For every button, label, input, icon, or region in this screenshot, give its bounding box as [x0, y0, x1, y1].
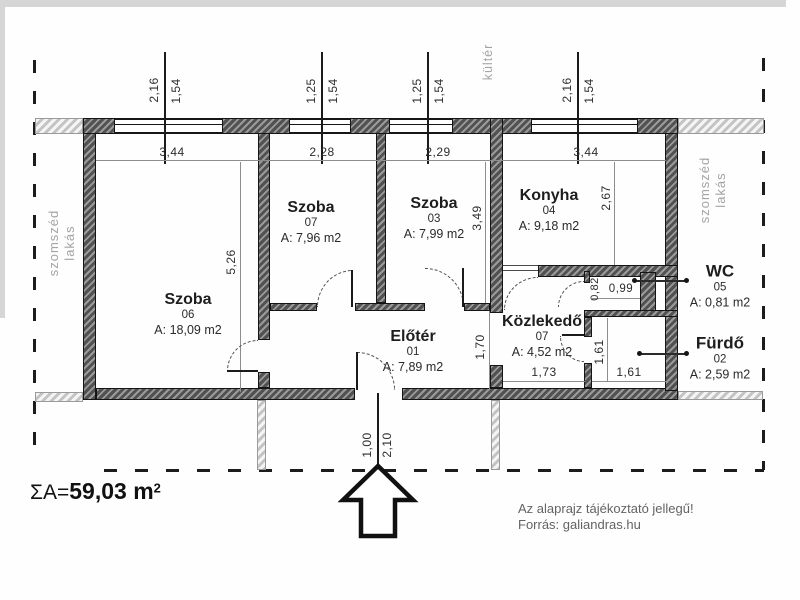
wall-segment	[258, 133, 270, 340]
wall-segment	[584, 363, 592, 388]
neighbor-text: szomszéd	[46, 210, 62, 277]
window	[532, 118, 637, 134]
room-name: WC	[690, 261, 750, 281]
dimension-line	[503, 381, 585, 382]
wall-segment	[83, 133, 96, 400]
neighbor-label-right: szomszéd lakás	[697, 157, 730, 224]
wall-segment	[538, 265, 678, 277]
room-number: 02	[690, 354, 750, 368]
width-dim: 2,29	[425, 145, 450, 159]
door-leaf-entrance	[356, 352, 358, 390]
room-name: Fürdő	[690, 333, 750, 353]
room-area: A: 7,96 m2	[281, 231, 341, 246]
window	[115, 118, 222, 134]
width-dim: 3,44	[573, 145, 598, 159]
furdo-leader-line	[641, 353, 686, 355]
wc-leader-line	[636, 280, 686, 282]
wc-leader-dot	[684, 278, 689, 283]
door-leaf-szoba06	[227, 370, 258, 372]
room-width-dim: 0,99	[609, 283, 633, 295]
room-number: 01	[383, 346, 443, 360]
total-area-prefix: ΣA=	[30, 481, 69, 504]
dimension-line	[592, 381, 666, 382]
room-label-furdo: Fürdő 02 A: 2,59 m2	[690, 333, 750, 382]
outside-text: kültér	[481, 44, 495, 81]
door-arc-szoba06	[227, 340, 258, 371]
wall-segment	[464, 303, 490, 311]
room-height-dim: 3,49	[470, 205, 484, 230]
neighbor-text: lakás	[713, 157, 729, 224]
wall-segment	[96, 388, 355, 400]
wall-segment	[270, 303, 317, 311]
room-width-dim: 1,61	[616, 365, 641, 379]
neighbor-wall	[491, 400, 500, 470]
window	[390, 118, 452, 134]
door-arc-szoba03	[425, 268, 464, 307]
window	[290, 118, 350, 134]
room-name: Előtér	[383, 327, 443, 346]
room-label-konyha: Konyha 04 A: 9,18 m2	[519, 186, 579, 234]
dimension-line	[485, 162, 486, 303]
window-height-dim: 1,54	[432, 78, 446, 103]
window-height-dim: 1,54	[582, 78, 596, 103]
entrance-axis	[377, 393, 379, 466]
room-name: Közlekedő	[502, 312, 582, 331]
door-leaf-furdo	[562, 334, 584, 336]
scan-artifact-left	[0, 0, 5, 318]
source-note: Forrás: galiandras.hu	[518, 517, 641, 534]
neighbor-text: lakás	[62, 210, 78, 277]
furdo-leader-dot	[684, 351, 689, 356]
total-area: ΣA=59,03 m2	[30, 478, 161, 505]
room-number: 03	[404, 213, 464, 227]
wall-segment	[490, 365, 503, 388]
room-label-szoba-03: Szoba 03 A: 7,99 m2	[404, 194, 464, 242]
door-leaf-szoba03	[462, 268, 464, 307]
wall-segment	[640, 272, 656, 312]
room-area: A: 9,18 m2	[519, 219, 579, 234]
source-text: Forrás: galiandras.hu	[518, 517, 641, 532]
boundary-line-bottom	[104, 469, 764, 472]
room-label-eloter: Előtér 01 A: 7,89 m2	[383, 327, 443, 375]
wall-segment	[376, 133, 386, 303]
window-height-dim: 1,54	[169, 78, 183, 103]
neighbor-wall	[35, 392, 83, 402]
room-number: 05	[690, 282, 750, 296]
room-area: A: 7,99 m2	[404, 227, 464, 242]
neighbor-label-left: szomszéd lakás	[46, 210, 79, 277]
neighbor-wall	[35, 118, 83, 134]
door-arc-konyha	[504, 277, 538, 310]
window-height-dim: 1,54	[326, 78, 340, 103]
wall-segment	[490, 118, 503, 313]
door-arc-szoba07	[317, 270, 353, 307]
room-height-dim: 0,82	[589, 277, 601, 300]
disclaimer-text: Az alaprajz tájékoztató jellegű!	[518, 501, 694, 516]
scan-artifact-top	[0, 0, 786, 7]
door-leaf-szoba07	[351, 270, 353, 307]
room-number: 04	[519, 205, 579, 219]
window-width-dim: 1,25	[304, 78, 318, 103]
room-height-dim: 2,67	[599, 185, 613, 210]
wall-segment	[584, 310, 678, 317]
dimension-line	[607, 318, 608, 382]
wall-segment	[584, 317, 592, 337]
wall-segment	[402, 388, 678, 400]
wall-segment	[222, 118, 290, 134]
dimension-line	[489, 311, 490, 389]
neighbor-wall	[257, 400, 266, 470]
wc-leader-dot	[632, 278, 637, 283]
room-number: 07	[281, 217, 341, 231]
dimension-line	[96, 160, 666, 161]
neighbor-wall	[678, 391, 763, 400]
total-area-sup: 2	[154, 481, 161, 496]
disclaimer-note: Az alaprajz tájékoztató jellegű!	[518, 501, 694, 518]
furdo-leader-dot	[637, 351, 642, 356]
room-name: Szoba	[281, 198, 341, 217]
dimension-line	[614, 162, 615, 265]
wall-segment	[83, 118, 115, 134]
neighbor-text: szomszéd	[697, 157, 713, 224]
room-area: A: 7,89 m2	[383, 360, 443, 375]
room-name: Szoba	[154, 290, 221, 309]
door-opening	[503, 265, 538, 271]
wall-segment	[258, 372, 270, 388]
outside-label: kültér	[481, 44, 497, 81]
entrance-width-dim: 1,00	[360, 432, 374, 457]
neighbor-wall	[678, 118, 764, 134]
room-height-dim: 1,61	[592, 339, 606, 364]
width-dim: 2,28	[309, 145, 334, 159]
width-dim: 3,44	[159, 145, 184, 159]
room-height-dim: 1,70	[473, 334, 487, 359]
window-width-dim: 2,16	[560, 77, 574, 102]
window-width-dim: 1,25	[410, 78, 424, 103]
entrance-arrow	[338, 460, 420, 542]
room-number: 06	[154, 309, 221, 323]
room-area: A: 0,81 m2	[690, 296, 750, 311]
room-height-dim: 5,26	[224, 249, 238, 274]
room-area: A: 2,59 m2	[690, 368, 750, 383]
room-label-wc: WC 05 A: 0,81 m2	[690, 261, 750, 310]
room-label-szoba-06: Szoba 06 A: 18,09 m2	[154, 290, 221, 338]
window-width-dim: 2,16	[147, 77, 161, 102]
room-name: Konyha	[519, 186, 579, 205]
wall-segment	[350, 118, 390, 134]
room-area: A: 18,09 m2	[154, 323, 221, 338]
floor-plan: 2,16 1,54 1,25 1,54 1,25 1,54 2,16 1,54 …	[0, 0, 800, 600]
room-label-szoba-07: Szoba 07 A: 7,96 m2	[281, 198, 341, 246]
door-arc-wc	[558, 281, 584, 307]
room-name: Szoba	[404, 194, 464, 213]
wall-segment	[637, 118, 678, 134]
room-width-dim: 1,73	[531, 365, 556, 379]
wall-segment	[355, 303, 425, 311]
total-area-value: 59,03 m	[69, 478, 153, 504]
entrance-height-dim: 2,10	[380, 432, 394, 457]
